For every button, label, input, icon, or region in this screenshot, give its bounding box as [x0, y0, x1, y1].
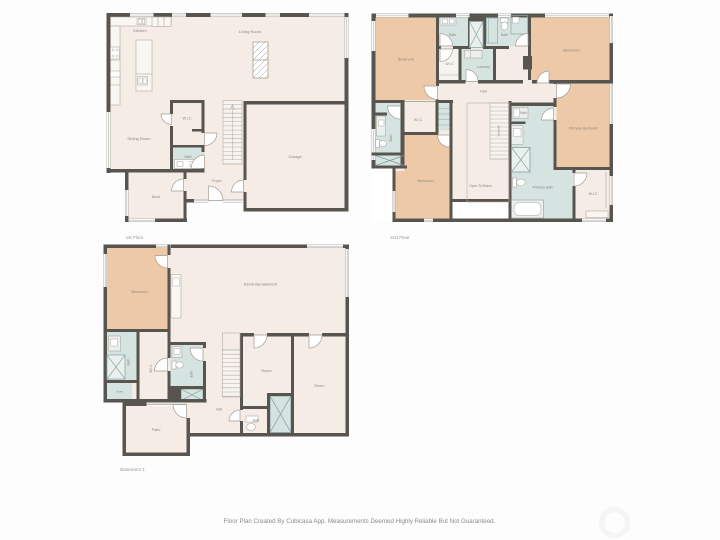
svg-text:Bath: Bath [389, 134, 393, 141]
svg-text:W.I.C.: W.I.C. [183, 117, 193, 121]
svg-text:W.I.C.: W.I.C. [414, 118, 423, 122]
svg-text:Bath: Bath [185, 155, 192, 159]
svg-text:Bedroom: Bedroom [131, 289, 148, 294]
svg-text:Nook: Nook [152, 195, 161, 199]
svg-text:Linen: Linen [116, 390, 124, 394]
svg-text:Room: Room [261, 369, 271, 373]
svg-text:Hall: Hall [216, 408, 222, 412]
svg-text:Hall: Hall [480, 90, 487, 94]
svg-text:W.I.C.: W.I.C. [446, 62, 455, 66]
svg-text:Garage: Garage [288, 154, 302, 159]
svg-text:Primary Bath: Primary Bath [533, 186, 554, 190]
svg-text:Open To Below: Open To Below [469, 184, 492, 188]
svg-text:Bath: Bath [501, 33, 508, 37]
svg-text:Dining Room: Dining Room [127, 136, 151, 141]
svg-text:Bath: Bath [449, 33, 456, 37]
svg-text:W.I.C.: W.I.C. [149, 363, 153, 372]
svg-text:Floor Plan Created By Cubicasa: Floor Plan Created By Cubicasa App. Meas… [224, 518, 496, 525]
svg-text:Stairwell: Stairwell [497, 125, 501, 137]
svg-text:2nd Floor: 2nd Floor [390, 235, 410, 240]
svg-text:W.I.C.: W.I.C. [589, 192, 599, 196]
svg-text:Bedroom: Bedroom [563, 48, 580, 53]
svg-text:Bedroom: Bedroom [417, 178, 434, 183]
svg-text:Primary Bedroom: Primary Bedroom [569, 127, 599, 131]
svg-text:Bath: Bath [190, 370, 194, 377]
svg-text:Bath: Bath [253, 419, 260, 423]
svg-text:Room: Room [314, 384, 324, 388]
svg-text:Kitchen: Kitchen [133, 28, 146, 33]
svg-text:Bath: Bath [520, 111, 527, 115]
svg-text:Bath: Bath [127, 358, 131, 365]
svg-text:1st Floor: 1st Floor [126, 235, 144, 240]
svg-text:Foyer: Foyer [212, 179, 222, 183]
svg-text:Laundry: Laundry [477, 65, 490, 69]
svg-text:Bedroom: Bedroom [398, 57, 415, 62]
svg-text:Rec/Entertainment: Rec/Entertainment [244, 282, 278, 287]
svg-text:Patio: Patio [152, 428, 161, 432]
svg-text:Living Room: Living Room [239, 29, 262, 34]
svg-text:Basement 1: Basement 1 [120, 467, 145, 472]
